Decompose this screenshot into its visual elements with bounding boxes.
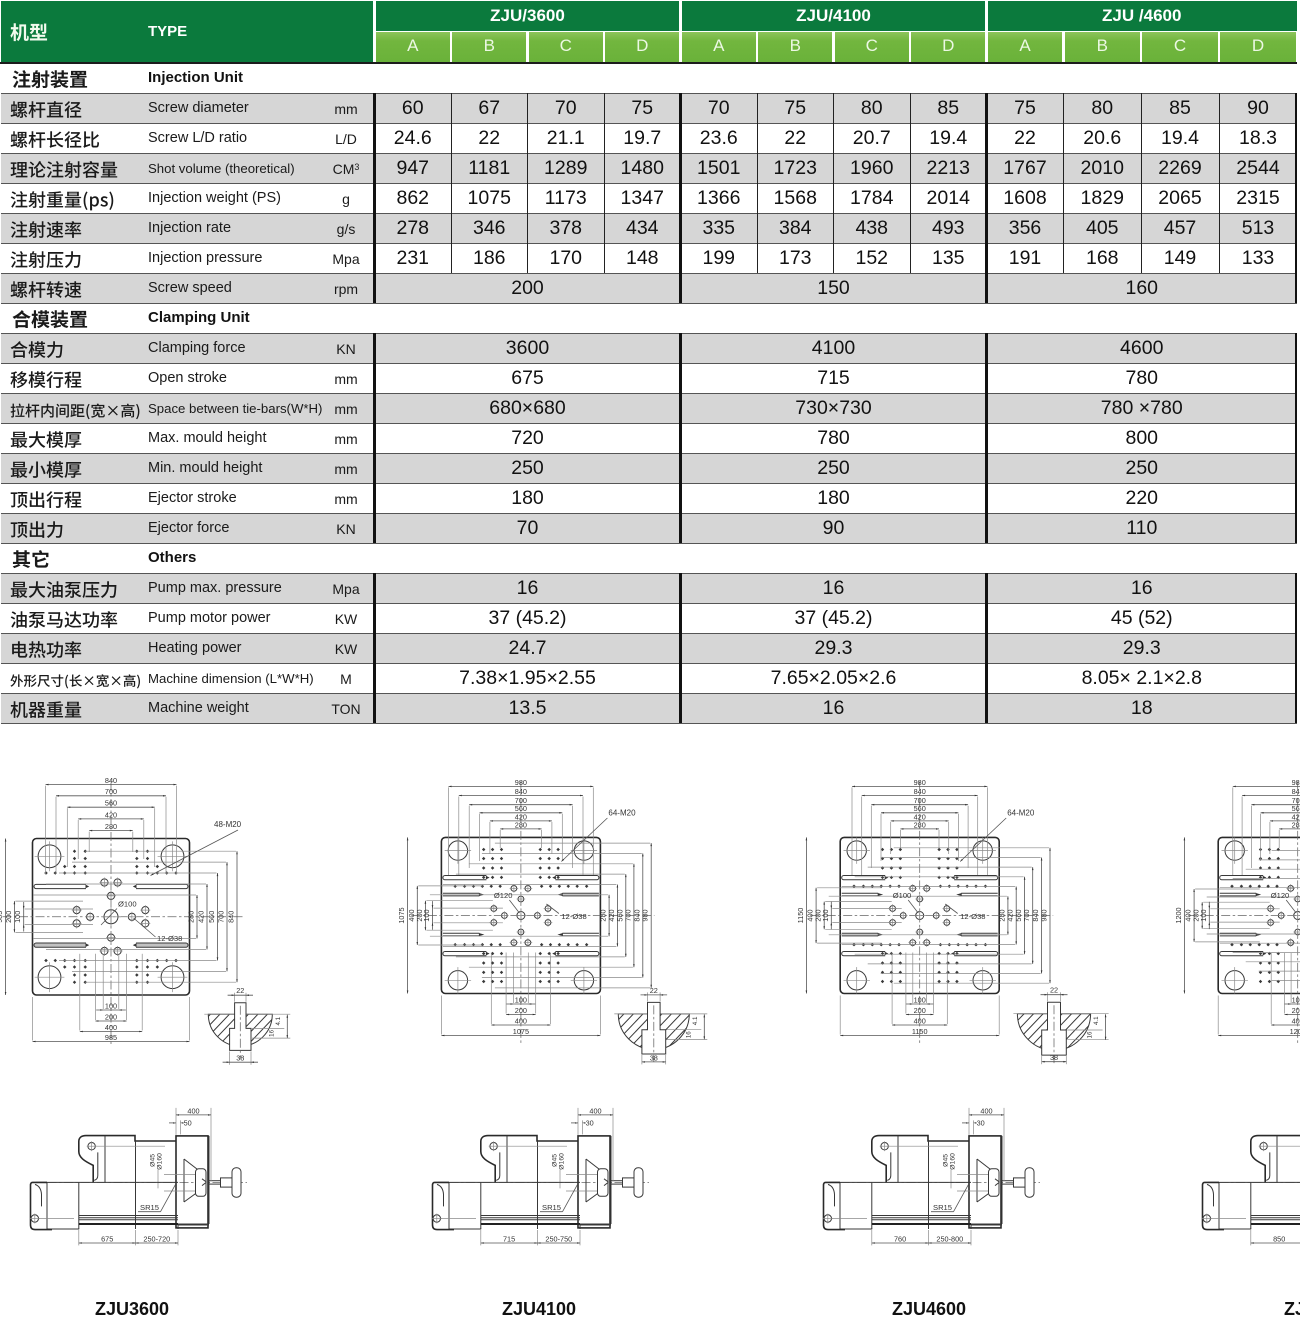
- svg-text:100: 100: [821, 909, 830, 921]
- svg-text:100: 100: [1199, 909, 1208, 921]
- svg-text:30: 30: [586, 1118, 594, 1127]
- svg-text:12-Ø38: 12-Ø38: [960, 912, 985, 921]
- svg-text:400: 400: [515, 1016, 527, 1025]
- svg-text:Ø45: Ø45: [943, 1154, 950, 1167]
- svg-text:250-720: 250-720: [143, 1234, 170, 1243]
- svg-text:48-M20: 48-M20: [214, 820, 242, 829]
- svg-text:16: 16: [1087, 1031, 1094, 1038]
- svg-text:840: 840: [105, 776, 117, 785]
- svg-text:SR15: SR15: [140, 1203, 159, 1212]
- svg-text:1150: 1150: [912, 1027, 928, 1036]
- svg-text:Ø160: Ø160: [950, 1153, 957, 1170]
- svg-text:22: 22: [650, 986, 658, 995]
- svg-text:1075: 1075: [513, 1027, 529, 1036]
- svg-text:200: 200: [4, 911, 13, 923]
- svg-text:100: 100: [422, 909, 431, 921]
- svg-text:SR15: SR15: [542, 1203, 561, 1212]
- svg-text:1075: 1075: [397, 907, 406, 923]
- svg-text:100: 100: [515, 995, 527, 1004]
- svg-text:700: 700: [1022, 909, 1031, 921]
- svg-text:400: 400: [980, 1106, 992, 1115]
- svg-text:30: 30: [977, 1118, 985, 1127]
- svg-text:980: 980: [914, 778, 926, 787]
- svg-text:22: 22: [1050, 986, 1058, 995]
- svg-text:760: 760: [894, 1234, 906, 1243]
- svg-text:840: 840: [1292, 787, 1300, 796]
- svg-text:4.1: 4.1: [1093, 1016, 1100, 1025]
- svg-text:400: 400: [914, 1016, 926, 1025]
- svg-text:Ø120: Ø120: [494, 891, 513, 900]
- svg-text:400: 400: [589, 1106, 601, 1115]
- svg-text:1200: 1200: [1290, 1027, 1300, 1036]
- svg-text:12-Ø38: 12-Ø38: [561, 912, 586, 921]
- svg-text:100: 100: [105, 1001, 117, 1010]
- svg-text:985: 985: [105, 1033, 117, 1042]
- svg-text:SR15: SR15: [933, 1203, 952, 1212]
- svg-text:200: 200: [515, 1006, 527, 1015]
- svg-text:280: 280: [515, 820, 527, 829]
- svg-text:Ø100: Ø100: [118, 900, 137, 909]
- svg-text:400: 400: [187, 1106, 199, 1115]
- svg-text:22: 22: [236, 986, 244, 995]
- svg-text:1150: 1150: [796, 908, 805, 924]
- svg-text:850: 850: [1273, 1234, 1285, 1243]
- svg-text:Ø45: Ø45: [552, 1154, 559, 1167]
- svg-text:280: 280: [1292, 820, 1300, 829]
- svg-text:840: 840: [515, 787, 527, 796]
- svg-text:16: 16: [685, 1031, 692, 1038]
- svg-text:16: 16: [268, 1029, 275, 1036]
- svg-text:1200: 1200: [1174, 907, 1183, 923]
- svg-text:400: 400: [105, 1023, 117, 1032]
- svg-text:700: 700: [217, 911, 226, 923]
- svg-text:700: 700: [105, 787, 117, 796]
- svg-text:Ø100: Ø100: [893, 891, 912, 900]
- svg-text:980: 980: [641, 909, 650, 921]
- svg-text:420: 420: [197, 911, 206, 923]
- svg-text:560: 560: [207, 911, 216, 923]
- svg-text:980: 980: [1040, 909, 1049, 921]
- svg-text:200: 200: [914, 1006, 926, 1015]
- svg-text:4.1: 4.1: [692, 1016, 699, 1025]
- svg-text:250-750: 250-750: [545, 1234, 572, 1243]
- svg-text:38: 38: [650, 1053, 658, 1062]
- svg-text:280: 280: [914, 820, 926, 829]
- svg-text:100: 100: [914, 995, 926, 1004]
- svg-text:560: 560: [105, 799, 117, 808]
- svg-text:700: 700: [623, 909, 632, 921]
- svg-text:64-M20: 64-M20: [608, 809, 636, 818]
- svg-text:840: 840: [227, 911, 236, 923]
- svg-text:64-M20: 64-M20: [1007, 809, 1035, 818]
- svg-text:675: 675: [101, 1234, 113, 1243]
- svg-text:980: 980: [515, 778, 527, 787]
- svg-text:400: 400: [1292, 1016, 1300, 1025]
- svg-text:Ø160: Ø160: [559, 1153, 566, 1170]
- svg-text:38: 38: [1050, 1053, 1058, 1062]
- svg-text:Ø160: Ø160: [157, 1153, 164, 1170]
- svg-text:250-800: 250-800: [936, 1234, 963, 1243]
- svg-text:200: 200: [105, 1012, 117, 1021]
- svg-text:100: 100: [1292, 995, 1300, 1004]
- svg-text:50: 50: [184, 1118, 192, 1127]
- svg-text:Ø45: Ø45: [150, 1154, 157, 1167]
- svg-text:280: 280: [187, 911, 196, 923]
- svg-text:200: 200: [1292, 1006, 1300, 1015]
- svg-text:12-Ø38: 12-Ø38: [157, 934, 182, 943]
- svg-text:280: 280: [105, 822, 117, 831]
- svg-text:715: 715: [503, 1234, 515, 1243]
- svg-text:Ø120: Ø120: [1271, 891, 1290, 900]
- svg-text:100: 100: [13, 911, 22, 923]
- svg-text:840: 840: [914, 787, 926, 796]
- svg-text:980: 980: [1292, 778, 1300, 787]
- svg-text:38: 38: [236, 1054, 244, 1063]
- svg-text:4.1: 4.1: [275, 1016, 282, 1025]
- svg-text:420: 420: [105, 810, 117, 819]
